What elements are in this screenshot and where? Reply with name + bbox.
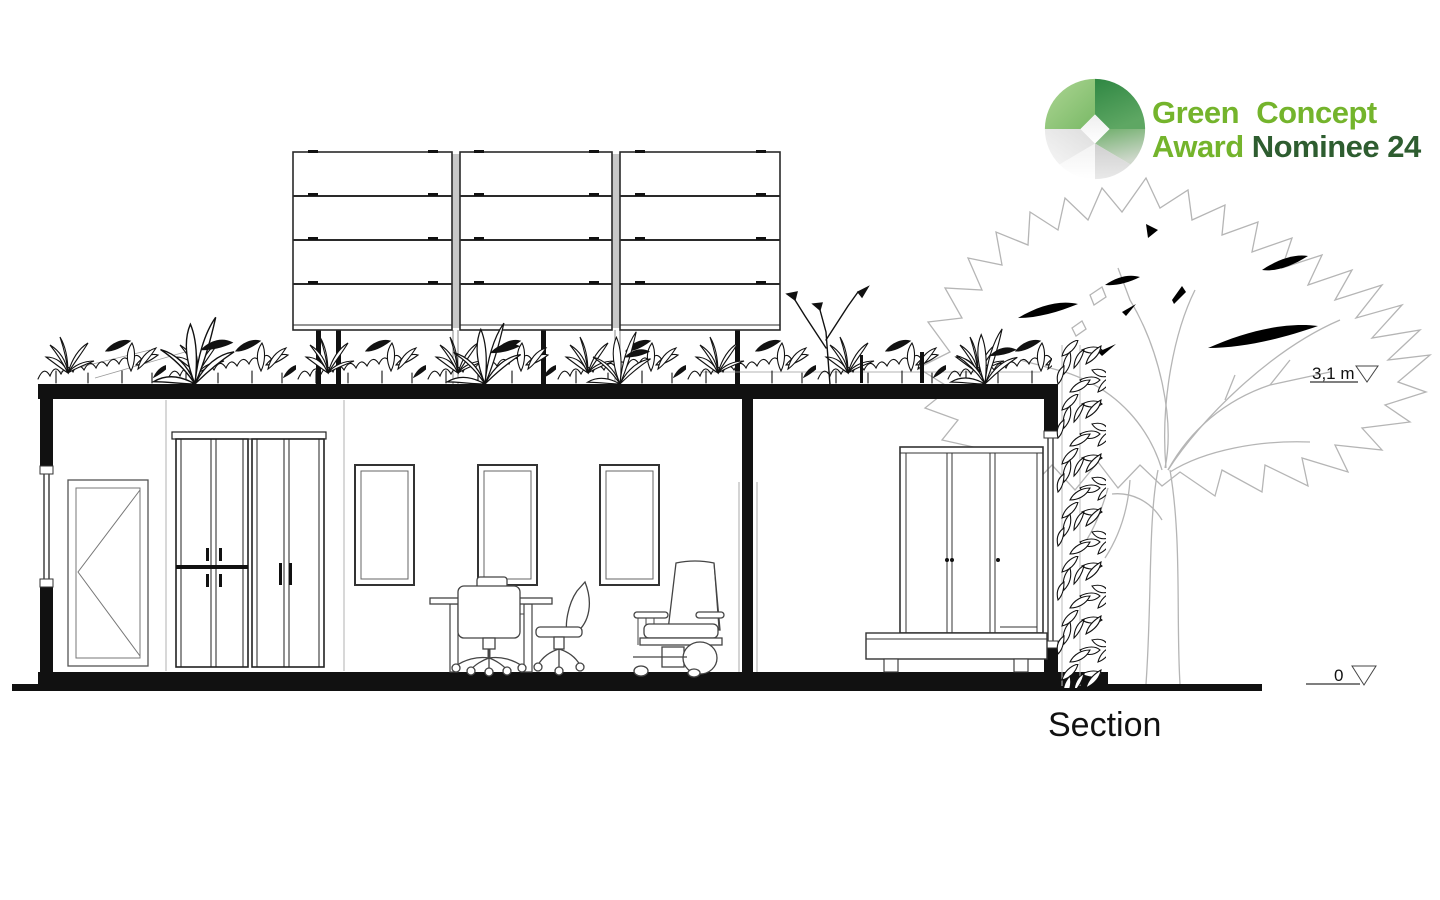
roof-slab: [38, 384, 1058, 399]
wall-window-1: [355, 465, 414, 585]
elevation-marker-roof: 3,1 m: [1310, 364, 1378, 383]
wall-window-2: [478, 465, 537, 585]
architectural-section-page: 3,1 m 0 Section: [0, 0, 1440, 900]
drawing-title: Section: [1048, 706, 1161, 744]
green-facade-wall: [1056, 340, 1106, 688]
left-wall: [40, 399, 53, 672]
closet: [900, 447, 1043, 633]
elevation-triangle-icon: [1356, 366, 1378, 382]
wardrobe: [172, 432, 326, 667]
nominee-word: Nominee 24: [1252, 129, 1421, 164]
elevation-ground-label: 0: [1334, 666, 1343, 685]
solar-panel-module-1: [293, 150, 452, 330]
tree-leaf-accents: [1018, 224, 1318, 356]
tree-leaf-outlines: [1072, 287, 1106, 336]
armchair: [633, 561, 724, 677]
award-gem-icon: [1042, 76, 1148, 182]
tree-trunk: [1112, 470, 1180, 684]
office-chair-2: [534, 582, 589, 675]
platform-bench: [866, 633, 1047, 672]
middle-wall: [739, 399, 757, 672]
award-badge-line2: AwardNominee 24: [1152, 130, 1421, 164]
entry-door: [68, 480, 148, 666]
award-word: Award: [1152, 129, 1244, 164]
award-badge-line1: Green Concept: [1152, 96, 1421, 130]
floor-slab: [38, 672, 1108, 686]
right-wall: [1044, 399, 1058, 672]
office-chair-1: [452, 577, 526, 676]
solar-panel-module-2: [460, 150, 612, 330]
award-badge-text: Green Concept AwardNominee 24: [1152, 96, 1421, 164]
solar-panel-module-3: [620, 150, 780, 330]
green-concept-award-badge: Green Concept AwardNominee 24: [1042, 76, 1422, 188]
wall-window-3: [600, 465, 659, 585]
elevation-triangle-icon: [1352, 666, 1376, 685]
elevation-marker-ground: 0: [1306, 666, 1376, 685]
elevation-roof-label: 3,1 m: [1312, 364, 1355, 383]
